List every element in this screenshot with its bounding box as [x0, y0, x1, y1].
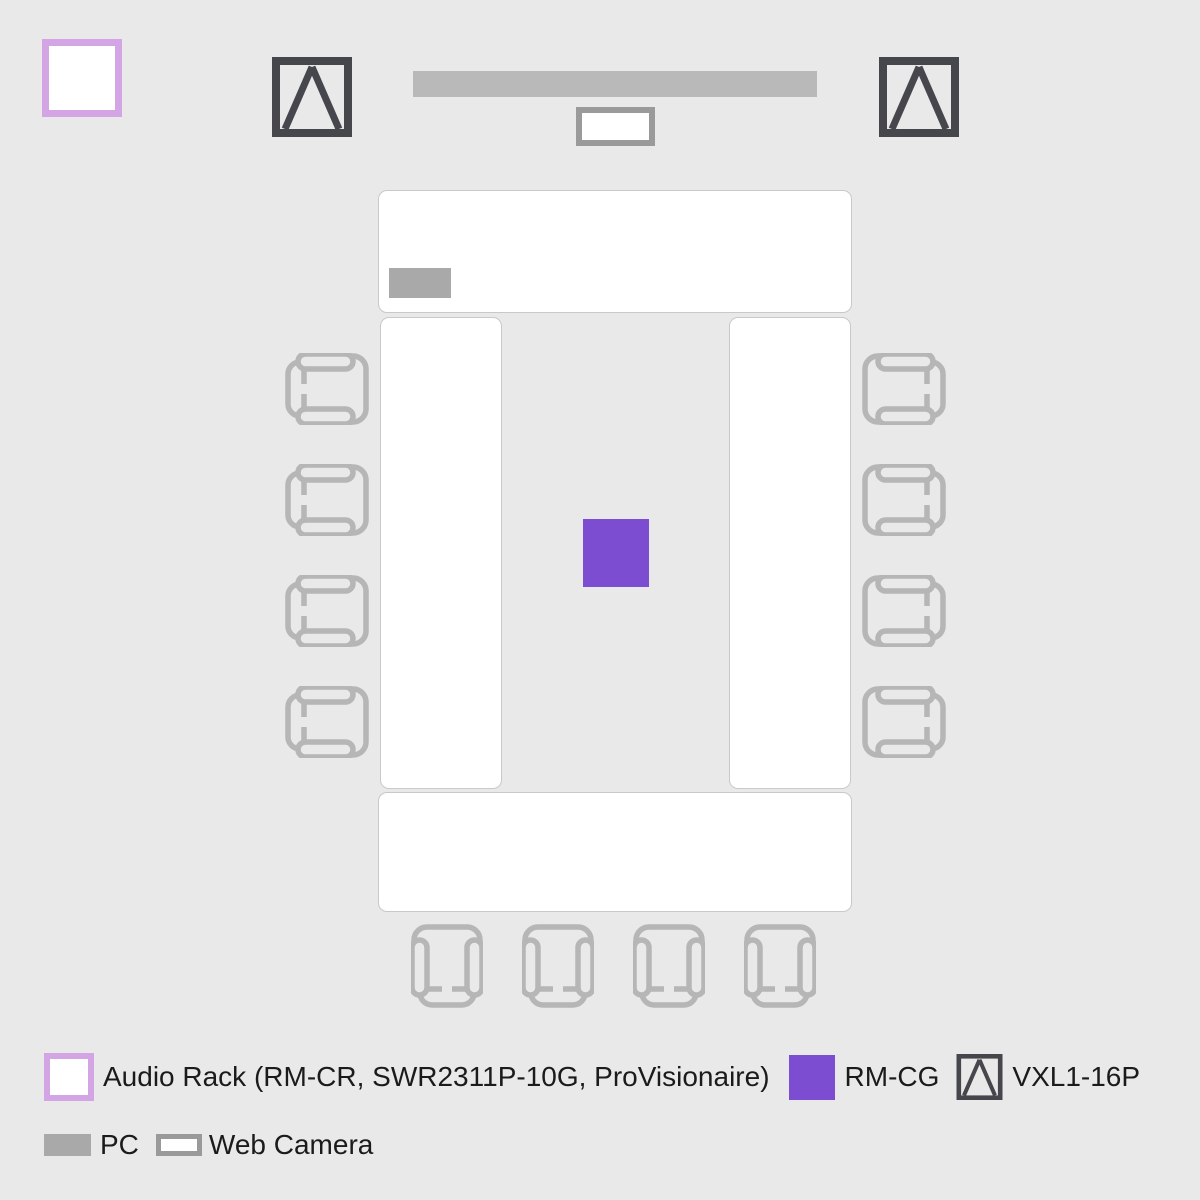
- rm-cg-swatch: [789, 1055, 835, 1100]
- chair: [862, 686, 946, 758]
- conference-table-left: [380, 317, 502, 789]
- audio-rack-unit: [42, 39, 122, 117]
- chair: [522, 924, 594, 1008]
- chair: [862, 464, 946, 536]
- chair: [411, 924, 483, 1008]
- rm-cg-microphone: [583, 519, 649, 587]
- chair: [862, 353, 946, 425]
- chair: [285, 686, 369, 758]
- vxl-speaker-right-icon: [879, 57, 959, 137]
- rm-cg-label: RM-CG: [845, 1061, 940, 1093]
- legend-row-1: Audio Rack (RM-CR, SWR2311P-10G, ProVisi…: [44, 1052, 1140, 1102]
- web-camera-label: Web Camera: [209, 1129, 373, 1161]
- pc-label: PC: [100, 1129, 139, 1161]
- chair: [744, 924, 816, 1008]
- chair: [285, 353, 369, 425]
- chair: [285, 464, 369, 536]
- legend-row-2: PC Web Camera: [44, 1132, 373, 1158]
- floor-plan: Audio Rack (RM-CR, SWR2311P-10G, ProVisi…: [0, 0, 1200, 1200]
- conference-table-right: [729, 317, 851, 789]
- audio-rack-swatch: [44, 1053, 94, 1101]
- vxl-swatch-icon: [956, 1054, 1003, 1100]
- chair: [285, 575, 369, 647]
- conference-table-bottom: [378, 792, 852, 912]
- vxl-label: VXL1-16P: [1012, 1061, 1140, 1093]
- web-camera-unit: [576, 107, 655, 146]
- vxl-speaker-left-icon: [272, 57, 352, 137]
- chair: [633, 924, 705, 1008]
- pc-unit: [389, 268, 451, 298]
- pc-swatch: [44, 1134, 91, 1156]
- chair: [862, 575, 946, 647]
- audio-rack-label: Audio Rack (RM-CR, SWR2311P-10G, ProVisi…: [103, 1061, 770, 1093]
- display-bar: [413, 71, 817, 97]
- web-camera-swatch: [156, 1134, 202, 1156]
